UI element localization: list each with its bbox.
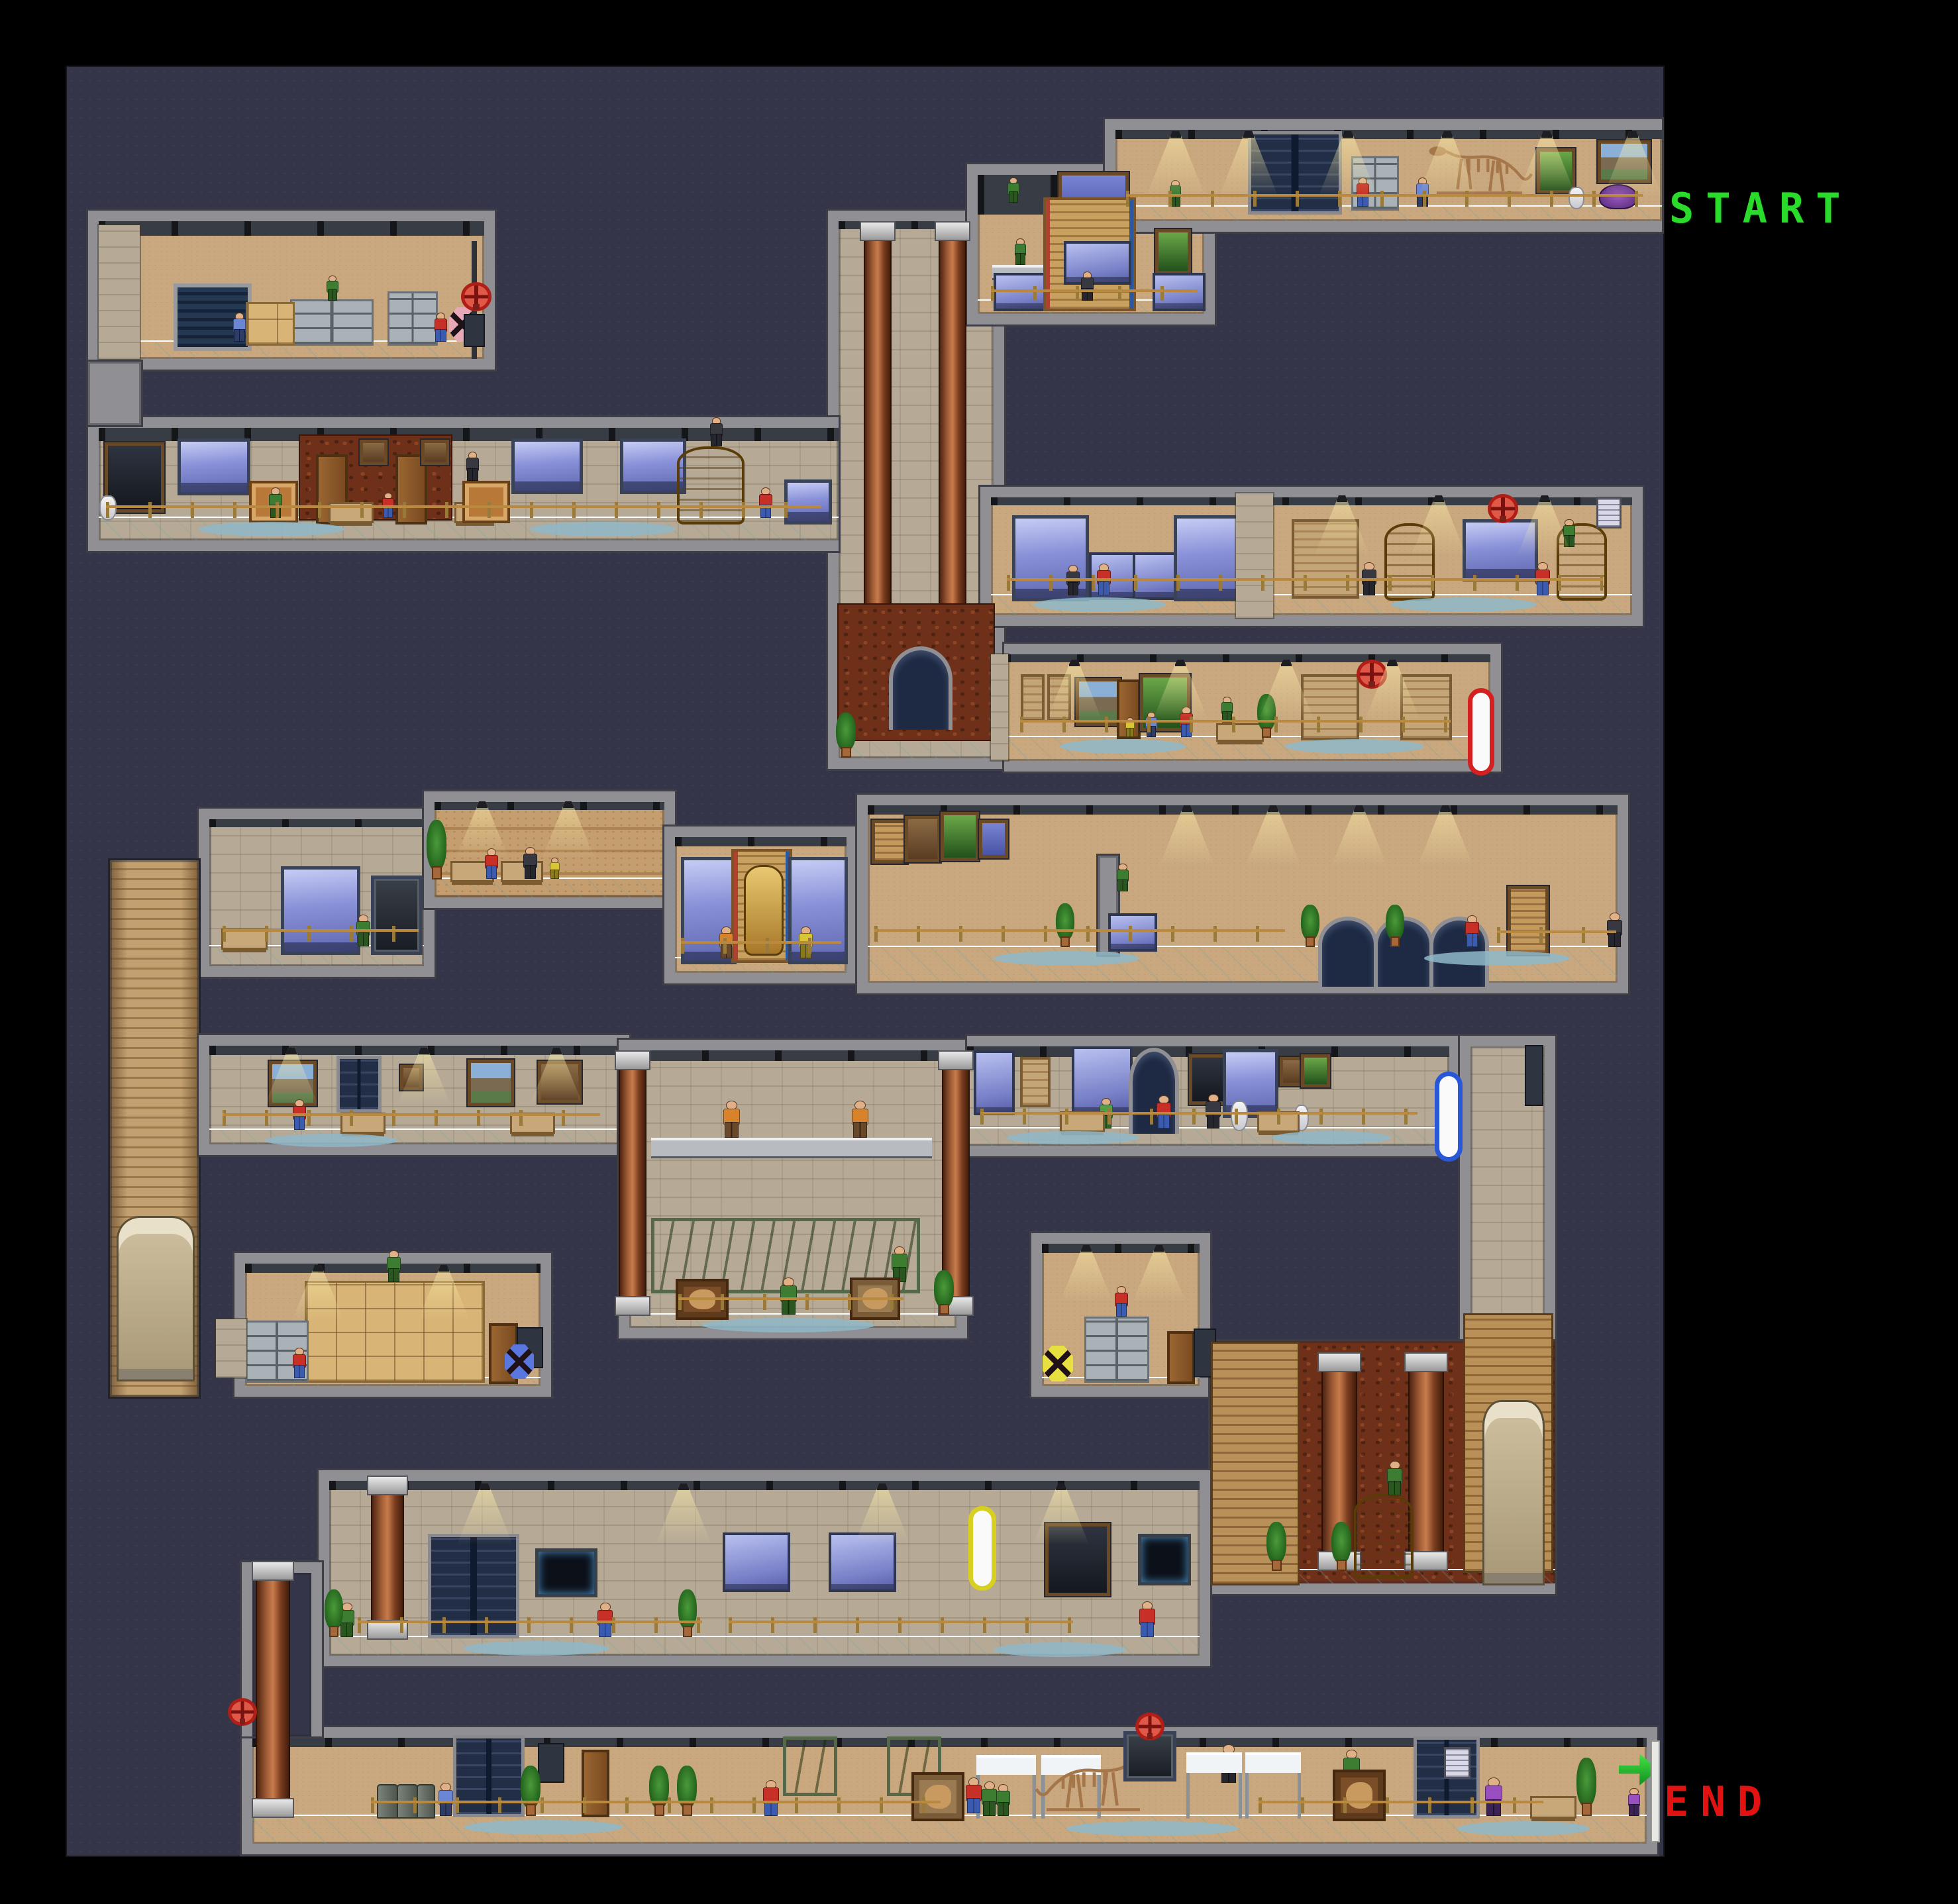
prop-person-red-person	[433, 313, 447, 342]
plant-pot	[1337, 1560, 1347, 1571]
column-base	[615, 1296, 650, 1316]
person-legs	[853, 1122, 866, 1138]
lamp-fixture	[1337, 495, 1347, 502]
lamp-fixture	[1281, 660, 1292, 666]
prop-pic-jungle	[1301, 1054, 1330, 1087]
prop-tv	[535, 1548, 597, 1597]
prop-skullcase	[1333, 1770, 1386, 1821]
prop-person-black-person	[522, 847, 537, 879]
prop-rug	[464, 1641, 609, 1656]
prop-person-red-person	[1113, 1286, 1128, 1317]
prop-rug	[1033, 597, 1166, 612]
plant-foliage	[1301, 905, 1319, 940]
prop-rug	[1457, 1821, 1590, 1836]
prop-rug	[994, 1642, 1126, 1657]
column-capital	[1404, 1352, 1448, 1372]
ceiling-band	[1042, 1244, 1200, 1253]
lamp-fixture	[1354, 805, 1365, 812]
person-legs	[1117, 879, 1128, 891]
plant-foliage	[1386, 905, 1404, 940]
prop-person-red-person	[964, 1778, 982, 1813]
prop-panel-dark	[464, 314, 485, 347]
prop-patchstone	[991, 654, 1008, 760]
prop-platform	[651, 1138, 932, 1158]
column-capital	[252, 1561, 294, 1581]
lamp-fixture	[1182, 805, 1192, 812]
lamp-fixture	[1440, 805, 1451, 812]
prop-panel-dark	[538, 1743, 564, 1783]
column-capital	[935, 221, 970, 241]
plant-pot	[329, 1626, 338, 1637]
prop-rope	[681, 938, 841, 954]
start-label: START	[1669, 184, 1853, 232]
level-map-screenshot: START END	[0, 0, 1958, 1904]
plant-pot	[939, 1304, 949, 1315]
prop-rope	[1259, 1797, 1543, 1813]
prop-valve	[1135, 1713, 1164, 1739]
lamp-fixture	[1442, 131, 1453, 138]
person-legs	[711, 434, 721, 446]
prop-rope	[1126, 191, 1643, 207]
person-legs	[1388, 1481, 1401, 1495]
prop-rope	[991, 286, 1198, 301]
person-legs	[1116, 1303, 1127, 1317]
plant-foliage	[934, 1270, 954, 1308]
prop-person-worker-person	[232, 313, 246, 342]
prop-wallblock	[88, 362, 141, 425]
prop-rug	[530, 522, 676, 536]
plant-foliage	[836, 713, 856, 751]
prop-rug	[1391, 597, 1537, 612]
prop-person-guard-person	[995, 1784, 1010, 1816]
person-legs	[388, 1268, 400, 1282]
prop-caps-red	[1468, 688, 1494, 776]
prop-rope	[1497, 927, 1616, 943]
prop-panel-dark	[1525, 1045, 1543, 1106]
prop-pic-egypt	[872, 820, 907, 864]
prop-person-guard-person	[1115, 864, 1129, 891]
person-legs	[467, 468, 478, 481]
prop-statue	[117, 1216, 195, 1381]
prop-caseb	[1064, 241, 1131, 285]
valve-stem	[473, 304, 479, 310]
person-legs	[294, 1365, 305, 1378]
plant-foliage	[1576, 1758, 1596, 1807]
plant-pot	[1272, 1560, 1282, 1571]
lamp-fixture	[1541, 131, 1552, 138]
prop-pic-brown	[905, 816, 941, 862]
prop-pic-egypt	[1508, 886, 1549, 955]
prop-case-blue	[620, 438, 686, 494]
plant-pot	[1582, 1803, 1592, 1816]
prop-person-guard-person	[1013, 238, 1026, 265]
prop-caps-yellow	[968, 1506, 996, 1591]
prop-table	[1186, 1752, 1242, 1819]
prop-panel-light	[1651, 1740, 1660, 1842]
valve-stem	[1147, 1733, 1153, 1739]
person-legs	[525, 865, 537, 879]
prop-arch	[1318, 917, 1378, 987]
prop-rug	[464, 1820, 623, 1834]
prop-case-blue	[511, 438, 583, 494]
prop-poster	[1444, 1747, 1470, 1779]
person-legs	[1009, 191, 1018, 203]
prop-caseb	[723, 1532, 790, 1592]
room-storage-1	[88, 211, 495, 370]
prop-col	[371, 1476, 404, 1640]
plant-pot	[841, 747, 851, 758]
prop-valve	[461, 282, 491, 310]
lamp-fixture	[1175, 660, 1186, 666]
prop-poster	[1596, 497, 1622, 528]
prop-door	[1167, 1331, 1195, 1384]
prop-col	[1408, 1352, 1444, 1571]
prop-patchstone	[216, 1319, 246, 1378]
person-legs	[1141, 1622, 1154, 1637]
ceiling-band	[991, 497, 1632, 505]
prop-person-guard-person	[1007, 177, 1019, 203]
plant-foliage	[325, 1589, 343, 1630]
lamp-fixture	[1056, 1483, 1066, 1490]
prop-person-red-person	[291, 1348, 306, 1378]
prop-rope	[106, 502, 821, 518]
prop-rug	[994, 951, 1139, 966]
plant-pot	[1390, 936, 1400, 947]
prop-rug	[1272, 1131, 1391, 1144]
prop-rug	[1007, 1131, 1139, 1144]
prop-greenhouse	[783, 1736, 837, 1796]
prop-shelf	[290, 299, 374, 346]
prop-pic-blue	[979, 820, 1008, 858]
prop-pic-brown	[421, 440, 449, 465]
lamp-fixture	[1243, 131, 1254, 138]
prop-rope	[223, 1110, 600, 1126]
lamp-fixture	[1539, 495, 1550, 502]
prop-person-yellow-person	[549, 858, 559, 879]
lamp-fixture	[1268, 805, 1278, 812]
person-legs	[998, 1802, 1009, 1816]
valve-stem	[1500, 516, 1506, 522]
prop-pic-jungle	[941, 812, 979, 861]
prop-plant	[934, 1270, 954, 1315]
column-capital	[860, 221, 896, 241]
person-legs	[486, 866, 497, 879]
lamp-fixture	[480, 1483, 490, 1490]
lamp-fixture	[1069, 660, 1080, 666]
prop-sarc	[1354, 1494, 1414, 1579]
prop-person-red-person	[1138, 1601, 1155, 1637]
prop-rope	[223, 926, 419, 942]
end-label: END	[1664, 1778, 1774, 1826]
prop-arch	[889, 646, 953, 730]
prop-person-guard-person	[386, 1250, 401, 1282]
prop-caseb	[974, 1050, 1015, 1115]
prop-plant	[1301, 905, 1319, 947]
prop-statue	[1482, 1400, 1545, 1585]
lamp-fixture	[678, 1483, 689, 1490]
lamp-fixture	[1627, 131, 1638, 138]
prop-pic-brown	[360, 440, 387, 465]
person-legs	[725, 1122, 738, 1138]
prop-rope	[678, 1294, 903, 1310]
ceiling-band	[868, 805, 1618, 815]
prop-rug	[199, 522, 344, 536]
prop-rope	[1020, 717, 1451, 732]
ceiling-band	[629, 1050, 956, 1061]
ceiling-band	[329, 1481, 1200, 1490]
prop-rug	[1424, 951, 1570, 966]
prop-pic-jungle	[1155, 229, 1191, 274]
ceiling-band	[435, 802, 664, 810]
prop-person-guard-person	[1386, 1461, 1402, 1495]
lamp-fixture	[877, 1483, 888, 1490]
person-legs	[1629, 1804, 1639, 1816]
prop-rope	[1007, 575, 1603, 591]
prop-person-orange-person	[722, 1101, 740, 1138]
column-capital	[938, 1050, 974, 1070]
prop-person-black-person	[465, 452, 479, 481]
prop-rug	[1066, 1821, 1239, 1836]
prop-rope	[874, 926, 1285, 942]
person-legs	[234, 329, 244, 342]
person-legs	[967, 1798, 980, 1813]
prop-caps-blue	[1435, 1072, 1463, 1162]
prop-person-black-person	[709, 417, 723, 446]
prop-relief	[1020, 1057, 1051, 1107]
ceiling-band	[209, 819, 424, 827]
prop-rope	[358, 1617, 702, 1633]
prop-crates	[246, 302, 295, 346]
prop-rug	[1285, 739, 1424, 754]
prop-rug	[265, 1134, 397, 1147]
prop-plant	[1576, 1758, 1596, 1816]
prop-plant	[325, 1589, 343, 1637]
column-capital	[1317, 1352, 1361, 1372]
prop-valve	[228, 1698, 257, 1725]
prop-sign-yellow	[1043, 1346, 1073, 1381]
valve-stem	[1368, 681, 1374, 687]
person-legs	[983, 1801, 996, 1816]
valve-stem	[240, 1719, 246, 1725]
prop-plant	[427, 820, 446, 879]
prop-skullcase-slab	[911, 1772, 964, 1821]
plant-pot	[432, 866, 442, 879]
lamp-fixture	[1170, 131, 1181, 138]
prop-plant	[1266, 1522, 1286, 1571]
person-legs	[1015, 253, 1025, 265]
prop-case-blue	[178, 438, 250, 495]
prop-doordark	[336, 1056, 382, 1113]
ceiling-band	[1115, 130, 1662, 139]
person-legs	[435, 329, 446, 342]
lamp-fixture	[1343, 131, 1353, 138]
prop-plant	[1331, 1522, 1351, 1571]
prop-sign-blue	[505, 1344, 534, 1379]
lamp-fixture	[1433, 495, 1444, 502]
column-base	[252, 1798, 294, 1818]
plant-foliage	[1266, 1522, 1286, 1564]
prop-col	[619, 1050, 646, 1316]
prop-patchstone	[99, 225, 140, 359]
prop-shelf	[1084, 1317, 1149, 1383]
prop-rug	[1060, 739, 1186, 754]
prop-case-dark	[371, 876, 423, 955]
prop-shelf	[387, 291, 438, 346]
prop-rope	[980, 1109, 1417, 1125]
column-capital	[615, 1050, 650, 1070]
plant-foliage	[427, 820, 446, 871]
person-legs	[1467, 933, 1478, 947]
prop-patchstone	[1236, 493, 1273, 618]
ceiling-band	[675, 837, 847, 846]
prop-person-guard-person	[890, 1246, 907, 1282]
prop-relief	[1021, 674, 1045, 722]
ceiling-band	[99, 221, 484, 236]
plant-foliage	[1331, 1522, 1351, 1564]
prop-person-orange-person	[850, 1101, 868, 1138]
prop-person-purple-person	[1627, 1788, 1640, 1816]
prop-plant	[1386, 905, 1404, 947]
person-legs	[550, 870, 558, 879]
prop-rug	[702, 1318, 874, 1332]
prop-person-red-person	[1464, 915, 1479, 947]
prop-rope	[371, 1797, 941, 1813]
prop-col	[256, 1561, 290, 1818]
prop-person-guard-person	[326, 276, 338, 301]
prop-pic-mountain	[468, 1060, 514, 1106]
prop-rope	[729, 1617, 1073, 1633]
lamp-fixture	[1387, 660, 1398, 666]
column-capital	[367, 1476, 408, 1495]
prop-valve	[1488, 494, 1518, 522]
plant-pot	[1306, 936, 1315, 947]
prop-plant	[836, 713, 856, 758]
person-legs	[328, 289, 337, 301]
prop-tv	[1138, 1534, 1191, 1585]
